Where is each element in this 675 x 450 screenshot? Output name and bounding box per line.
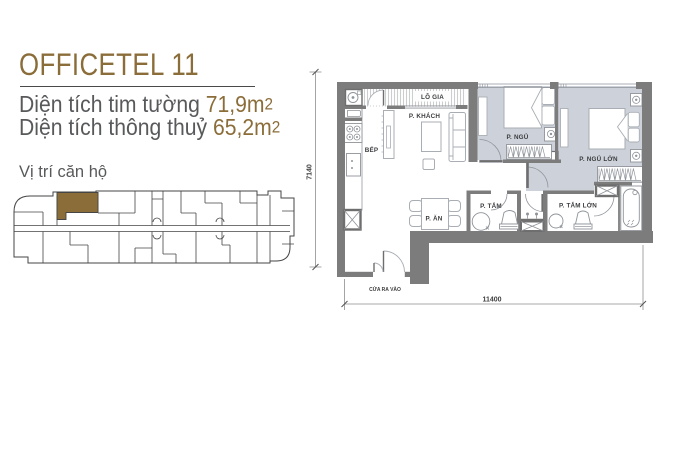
svg-text:P. ĂN: P. ĂN: [426, 214, 443, 223]
svg-text:LÔ GIA: LÔ GIA: [421, 92, 444, 101]
svg-text:11400: 11400: [482, 297, 501, 304]
svg-text:P. NGỦ: P. NGỦ: [506, 132, 528, 141]
svg-text:CỬA RA VÀO: CỬA RA VÀO: [369, 286, 401, 293]
svg-text:P. TẮM LỚN: P. TẮM LỚN: [559, 201, 597, 210]
svg-text:BẾP: BẾP: [365, 144, 379, 154]
svg-text:P. NGỦ LỚN: P. NGỦ LỚN: [579, 154, 618, 163]
svg-text:P. KHÁCH: P. KHÁCH: [409, 111, 440, 120]
svg-text:P. TẮM: P. TẮM: [480, 201, 502, 210]
svg-text:7140: 7140: [307, 164, 314, 180]
